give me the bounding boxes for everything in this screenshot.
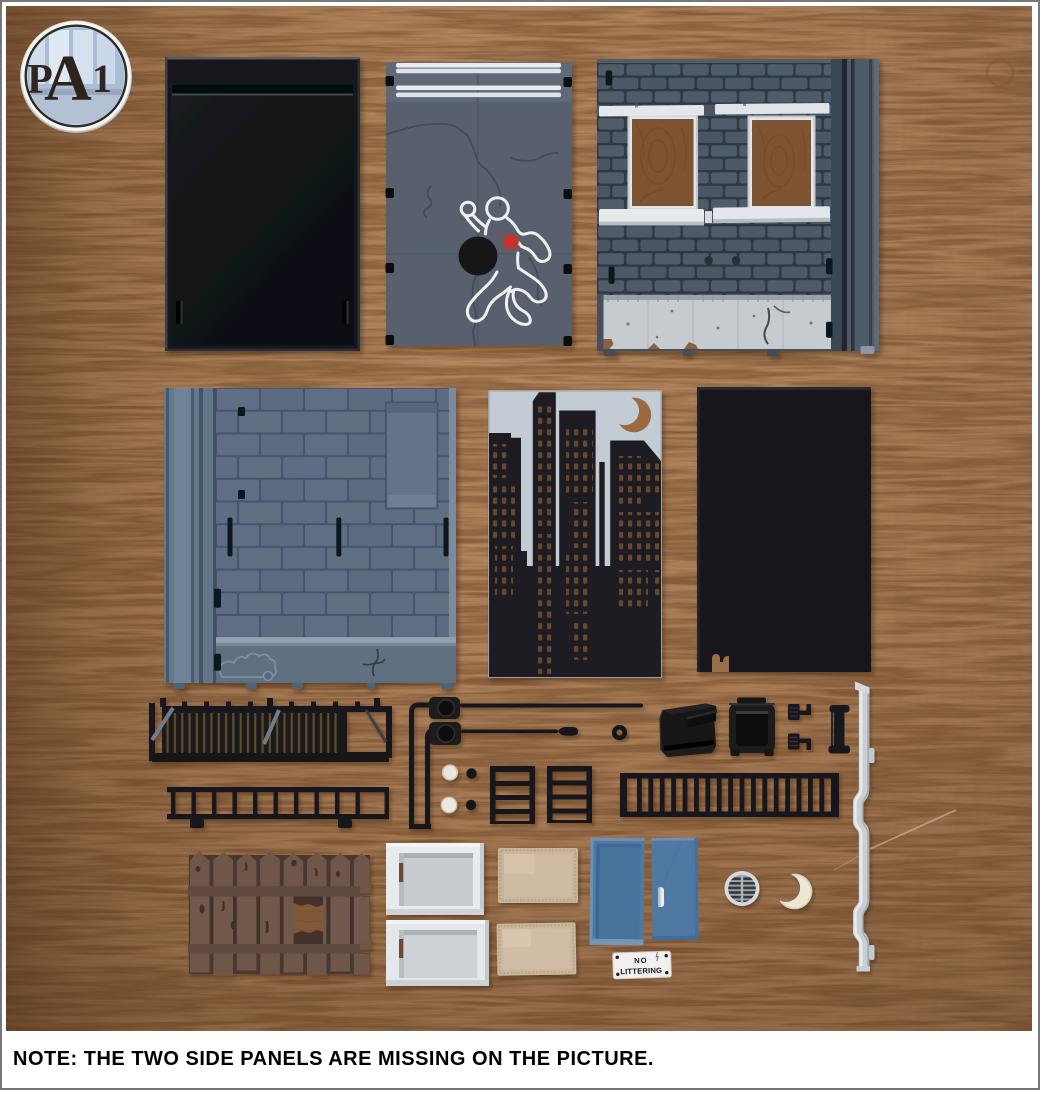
svg-text:LITTERING: LITTERING xyxy=(620,966,662,976)
svg-text:NO: NO xyxy=(634,956,648,965)
svg-text:1: 1 xyxy=(92,56,112,101)
svg-text:A: A xyxy=(44,42,92,115)
